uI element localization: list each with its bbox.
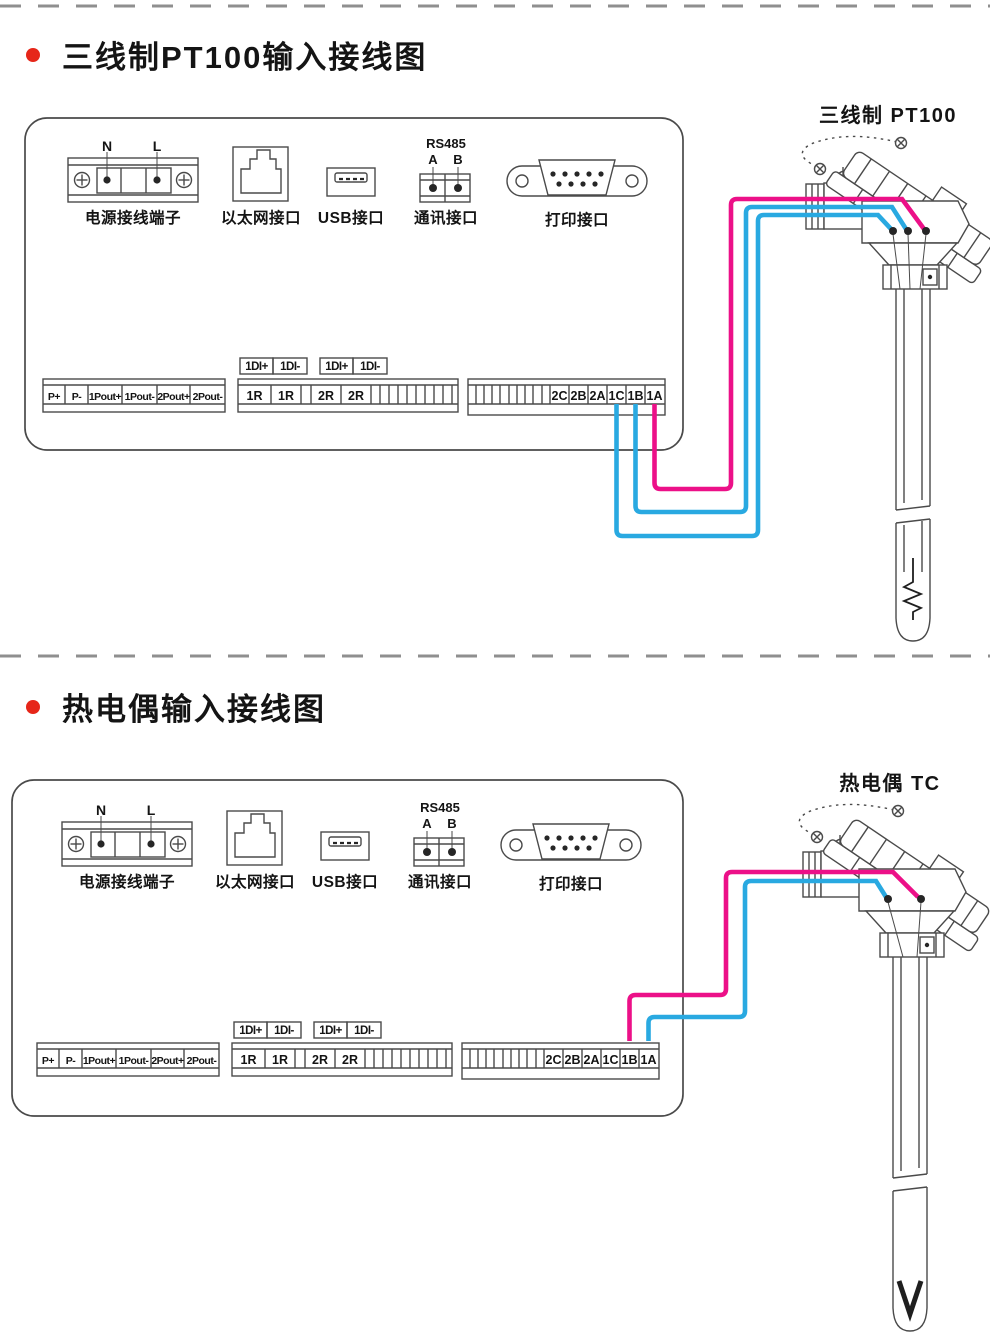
cell-1r-a: 1R — [241, 1053, 257, 1067]
printer-label: 打印接口 — [539, 874, 603, 893]
pt100-probe-stem — [896, 289, 930, 641]
cell-1r-a: 1R — [247, 389, 263, 403]
cell-1a: 1A — [641, 1053, 657, 1067]
cell-1b: 1B — [628, 389, 644, 403]
cell-p-plus: P+ — [48, 391, 61, 403]
di-label-2: 1DI- — [280, 361, 300, 373]
di-label-1: 1DI+ — [245, 361, 268, 373]
power-n-label: N — [96, 802, 106, 818]
cell-1c: 1C — [603, 1053, 619, 1067]
printer-label: 打印接口 — [545, 210, 609, 229]
cell-1a: 1A — [647, 389, 663, 403]
tc-probe-stem — [893, 957, 927, 1331]
cell-2b: 2B — [571, 389, 587, 403]
comm-label: 通讯接口 — [414, 208, 478, 227]
cell-p-plus: P+ — [42, 1055, 55, 1067]
cell-2r-a: 2R — [318, 389, 334, 403]
power-terminal-label: 电源接线端子 — [79, 872, 175, 891]
cell-2r-b: 2R — [348, 389, 364, 403]
cell-1pout-minus: 1Pout- — [119, 1055, 150, 1067]
comm-label: 通讯接口 — [408, 872, 472, 891]
cell-1r-b: 1R — [278, 389, 294, 403]
di-label-1: 1DI+ — [239, 1025, 262, 1037]
cell-2r-a: 2R — [312, 1053, 328, 1067]
rtd-element-icon — [904, 558, 921, 620]
power-l-label: L — [153, 138, 162, 154]
cell-1pout-plus: 1Pout+ — [89, 391, 122, 403]
sensor-type-label: 热电偶 TC — [839, 771, 940, 795]
cell-p-minus: P- — [66, 1055, 77, 1067]
di-label-2: 1DI- — [274, 1025, 294, 1037]
usb-label: USB接口 — [318, 208, 384, 227]
rs485-b-label: B — [453, 152, 462, 167]
cell-1pout-minus: 1Pout- — [125, 391, 156, 403]
bullet-icon — [26, 700, 40, 714]
cell-2pout-minus: 2Pout- — [187, 1055, 218, 1067]
power-terminal-label: 电源接线端子 — [85, 208, 181, 227]
sensor-type-label: 三线制 PT100 — [819, 103, 957, 127]
cell-2pout-plus: 2Pout+ — [151, 1055, 184, 1067]
di-label-4: 1DI- — [360, 361, 380, 373]
diagram-pt100: N L 电源接线端子 以太网接口 USB接口 RS485 A B 通讯接口 打印… — [0, 0, 990, 660]
section-title-tc: 热电偶输入接线图 — [26, 684, 326, 729]
rs485-title: RS485 — [420, 800, 460, 815]
cell-1pout-plus: 1Pout+ — [83, 1055, 116, 1067]
cell-2a: 2A — [584, 1053, 600, 1067]
di-label-3: 1DI+ — [319, 1025, 342, 1037]
rs485-b-label: B — [447, 816, 456, 831]
tc-probe-head — [799, 800, 990, 957]
cell-2pout-minus: 2Pout- — [193, 391, 224, 403]
wiring-diagram-page: 三线制PT100输入接线图 N L 电源接线端子 以太网接口 USB接口 RS4… — [0, 0, 990, 1337]
cell-1b: 1B — [622, 1053, 638, 1067]
power-n-label: N — [102, 138, 112, 154]
cell-2a: 2A — [590, 389, 606, 403]
di-label-3: 1DI+ — [325, 361, 348, 373]
bullet-icon — [26, 48, 40, 62]
rs485-a-label: A — [422, 816, 432, 831]
cell-2r-b: 2R — [342, 1053, 358, 1067]
section-title-text: 热电偶输入接线图 — [62, 684, 326, 729]
ethernet-label: 以太网接口 — [221, 208, 301, 227]
rs485-a-label: A — [428, 152, 438, 167]
cell-2c: 2C — [552, 389, 568, 403]
rs485-title: RS485 — [426, 136, 466, 151]
wire-1a-to-sensor — [649, 881, 887, 1041]
cell-1c: 1C — [609, 389, 625, 403]
cell-2pout-plus: 2Pout+ — [157, 391, 190, 403]
cell-1r-b: 1R — [272, 1053, 288, 1067]
section-title-text: 三线制PT100输入接线图 — [62, 32, 427, 77]
cell-p-minus: P- — [72, 391, 83, 403]
cell-2b: 2B — [565, 1053, 581, 1067]
tc-junction-icon — [899, 1281, 921, 1314]
ethernet-label: 以太网接口 — [215, 872, 295, 891]
diagram-tc: N L 电源接线端子 以太网接口 USB接口 RS485 A B 通讯接口 打印… — [0, 660, 990, 1337]
usb-label: USB接口 — [312, 872, 378, 891]
di-label-4: 1DI- — [354, 1025, 374, 1037]
cell-2c: 2C — [546, 1053, 562, 1067]
section-title-pt100: 三线制PT100输入接线图 — [26, 32, 427, 77]
power-l-label: L — [147, 802, 156, 818]
